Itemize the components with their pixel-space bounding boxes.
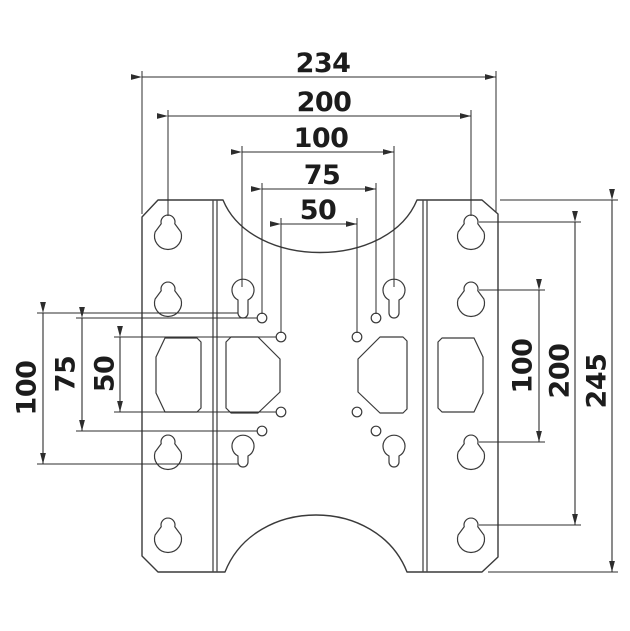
dim-label-right-height-100: 100 <box>508 339 539 394</box>
vesa75-hole-bottom-right <box>371 426 381 436</box>
vesa50-hole-bottom-right <box>352 407 362 417</box>
vesa75-hole-bottom-left <box>257 426 267 436</box>
vesa50-hole-top-right <box>352 332 362 342</box>
vesa75-hole-top-right <box>371 313 381 323</box>
dim-label-right-height-200: 200 <box>545 344 576 399</box>
vesa50-hole-top-left <box>276 332 286 342</box>
technical-drawing-page: 234 200 100 75 50 100 75 50 100 200 245 <box>0 0 630 631</box>
dim-label-overall-width: 234 <box>296 48 351 79</box>
dim-label-left-height-75: 75 <box>51 356 82 393</box>
left-rail-hex-cutout <box>156 338 201 412</box>
vesa75-hole-top-left <box>257 313 267 323</box>
dim-label-width-75: 75 <box>304 160 341 191</box>
vesa50-hole-bottom-left <box>276 407 286 417</box>
dim-label-left-height-50: 50 <box>90 356 121 393</box>
dim-label-width-100: 100 <box>294 123 349 154</box>
right-rail-hex-cutout <box>438 338 483 412</box>
dim-label-width-50: 50 <box>300 195 337 226</box>
dim-label-width-200: 200 <box>297 87 352 118</box>
dim-label-left-height-100: 100 <box>12 361 43 416</box>
vesa-plate-drawing: 234 200 100 75 50 100 75 50 100 200 245 <box>0 0 630 631</box>
dim-label-overall-height: 245 <box>582 354 613 409</box>
